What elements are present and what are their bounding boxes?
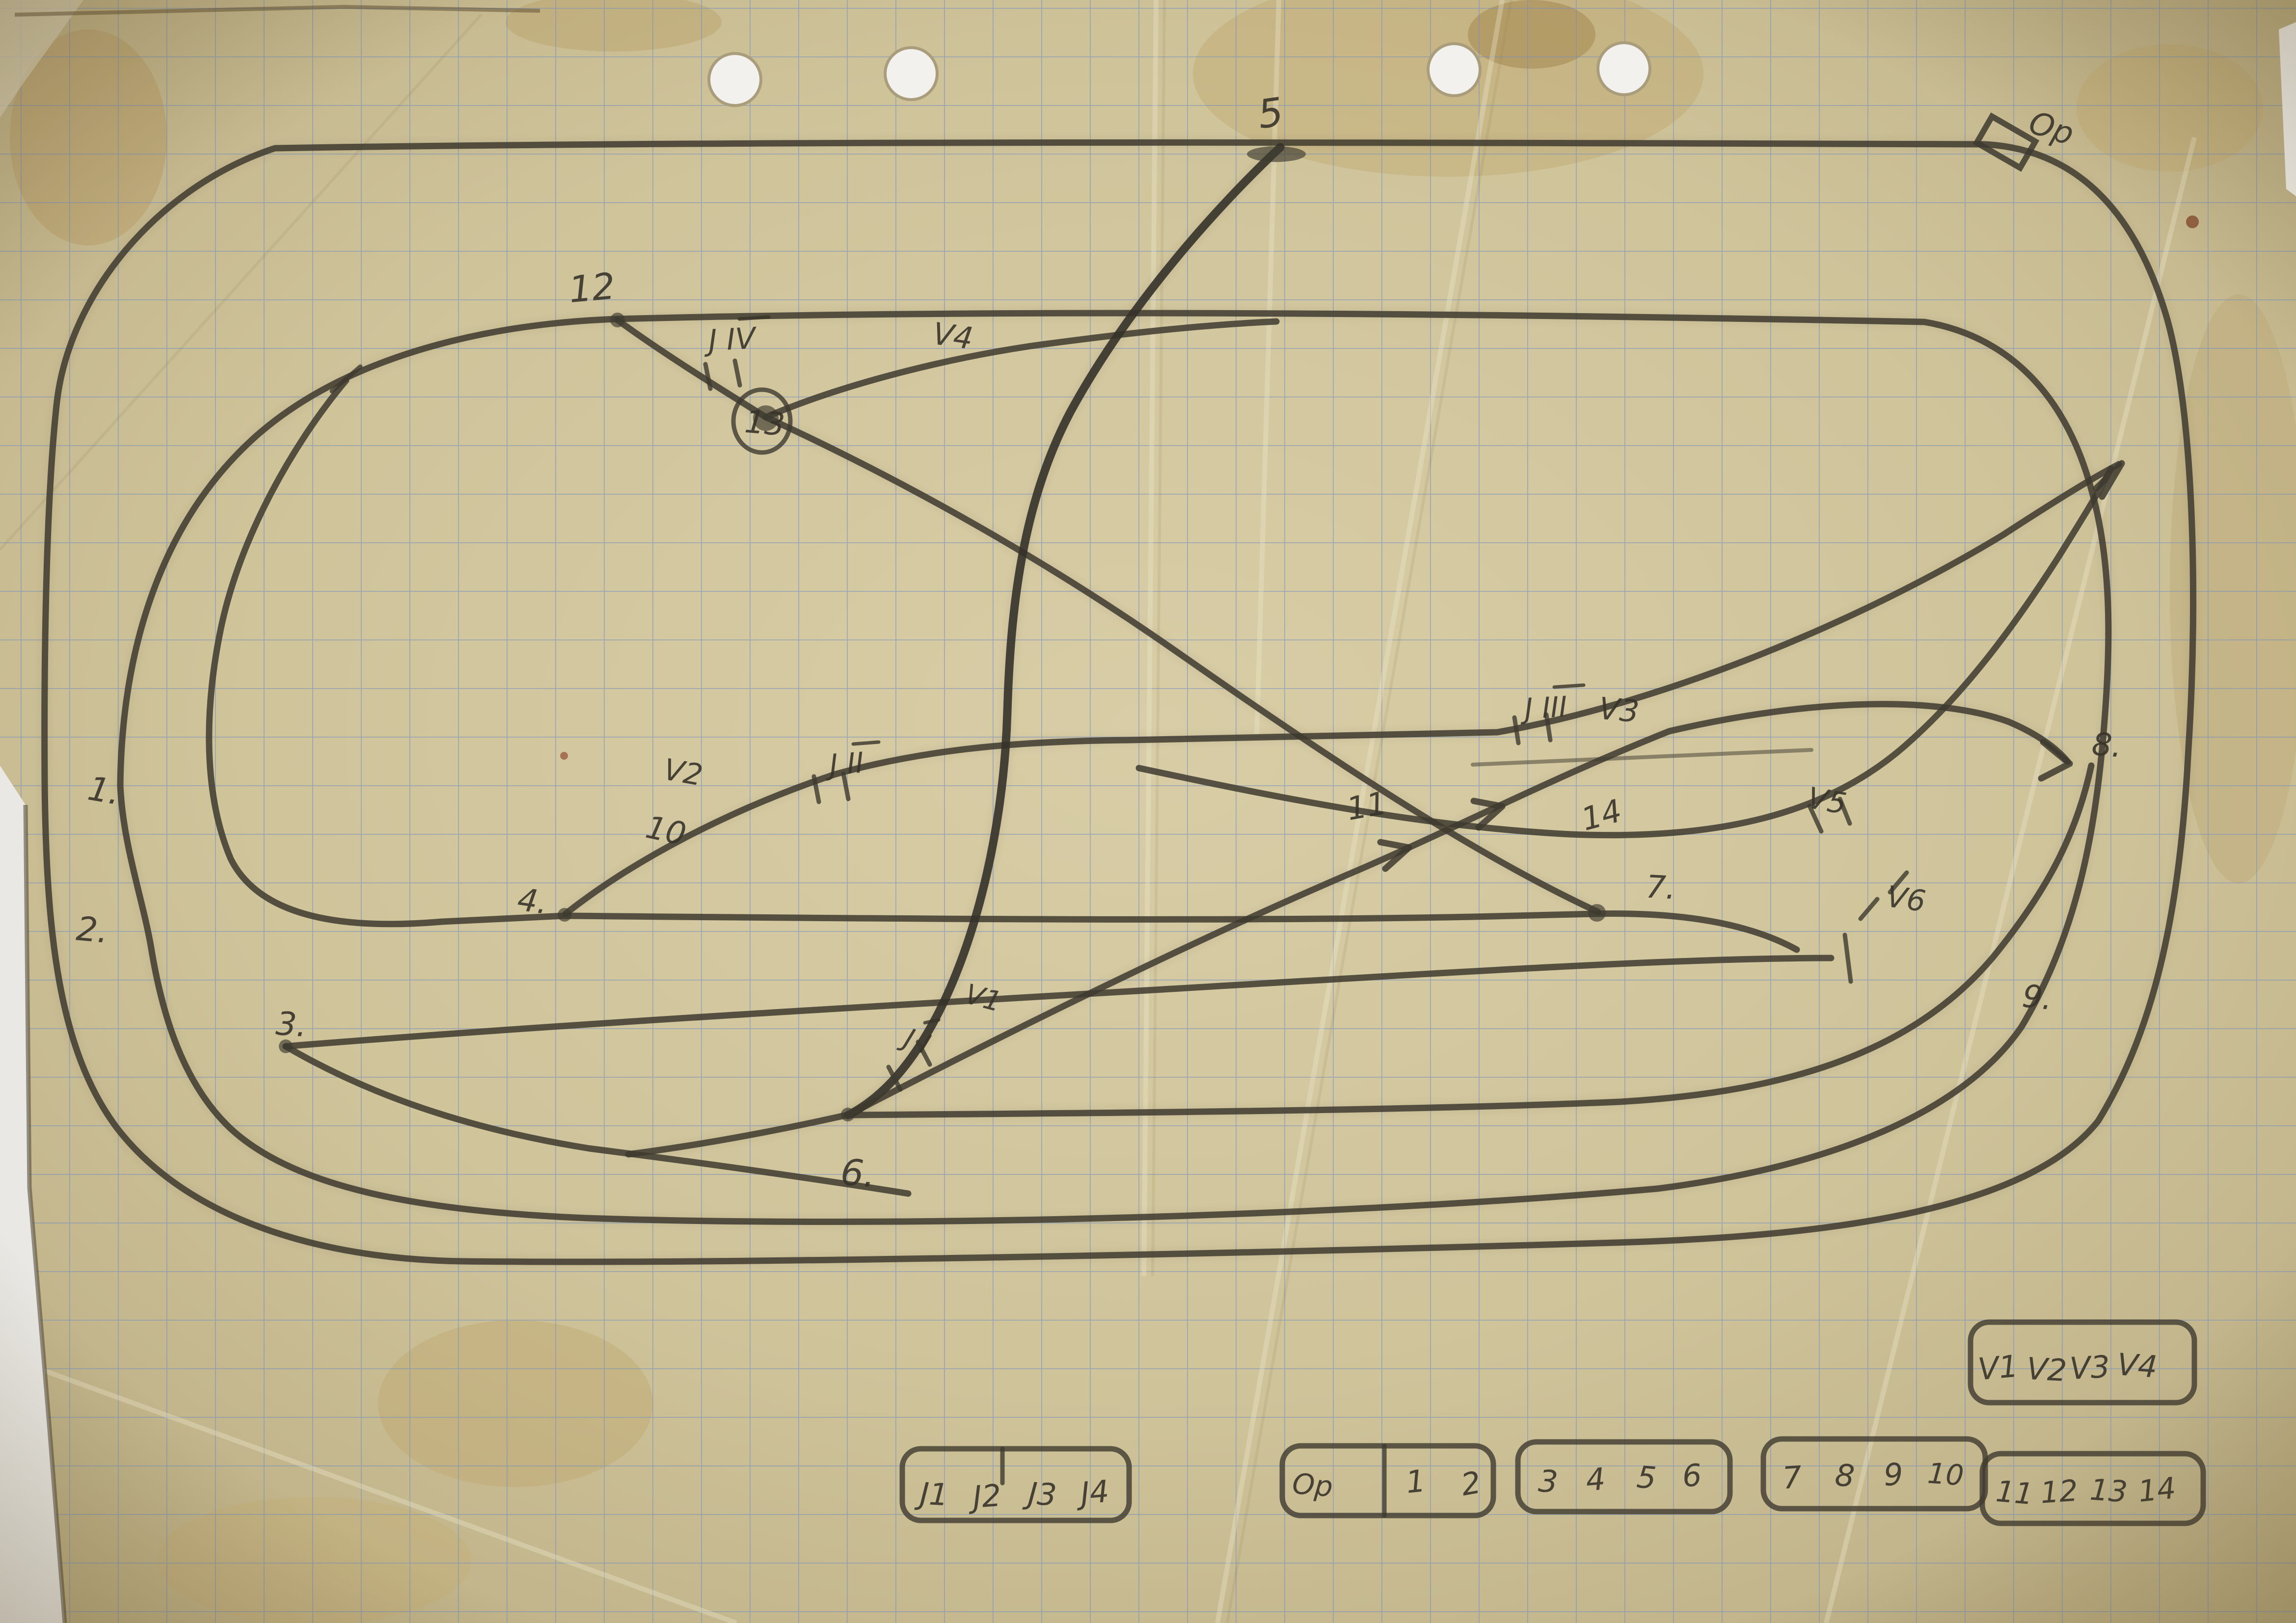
track-plan-sketch: 5 Op 12 J IV 13 V4 1. 2. V2 10 J II 4. 3…	[0, 0, 2296, 1623]
scanned-track-plan-page: 5 Op 12 J IV 13 V4 1. 2. V2 10 J II 4. 3…	[0, 0, 2296, 1623]
edge-vignette	[0, 0, 2296, 1623]
